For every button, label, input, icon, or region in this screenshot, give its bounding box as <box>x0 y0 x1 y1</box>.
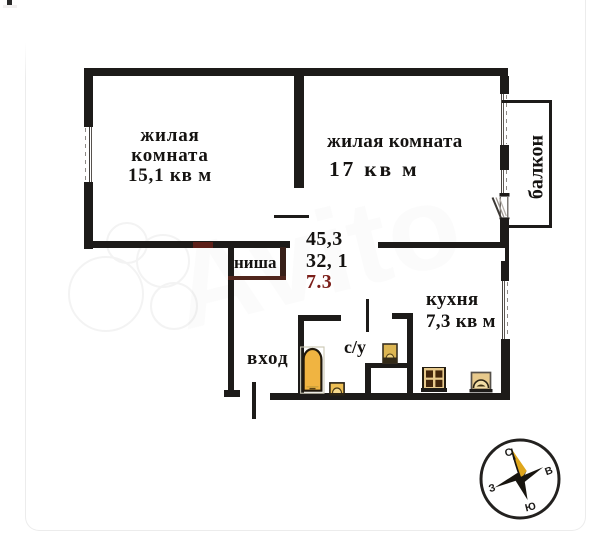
svg-text:балкон: балкон <box>526 135 548 199</box>
svg-text:Ю: Ю <box>524 500 538 514</box>
svg-text:З: З <box>487 482 497 495</box>
svg-text:В: В <box>543 464 555 478</box>
